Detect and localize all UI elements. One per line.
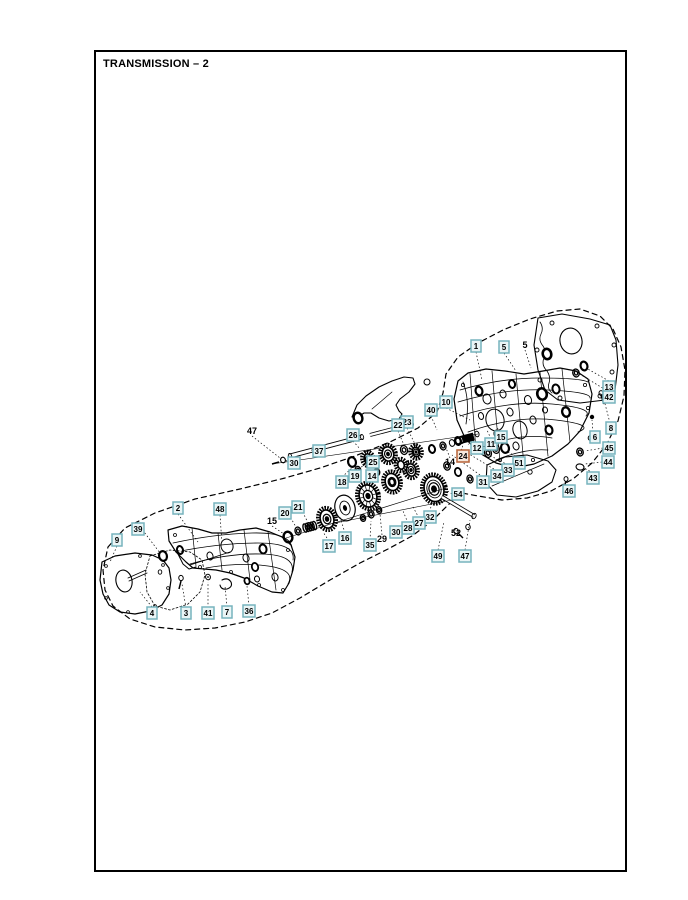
svg-text:40: 40 <box>427 406 436 415</box>
svg-text:37: 37 <box>315 447 324 456</box>
svg-text:28: 28 <box>404 524 413 533</box>
svg-text:39: 39 <box>134 525 143 534</box>
svg-text:24: 24 <box>459 452 468 461</box>
svg-text:45: 45 <box>605 444 614 453</box>
svg-text:2: 2 <box>176 504 181 513</box>
svg-text:41: 41 <box>204 609 213 618</box>
svg-text:15: 15 <box>267 516 277 526</box>
svg-text:48: 48 <box>216 505 225 514</box>
svg-text:26: 26 <box>349 431 358 440</box>
svg-text:30: 30 <box>290 459 299 468</box>
svg-text:12: 12 <box>473 444 482 453</box>
svg-text:29: 29 <box>377 534 387 544</box>
svg-text:51: 51 <box>515 459 524 468</box>
svg-text:9: 9 <box>115 536 120 545</box>
svg-text:8: 8 <box>609 424 614 433</box>
svg-text:35: 35 <box>366 541 375 550</box>
svg-text:33: 33 <box>504 466 513 475</box>
svg-text:43: 43 <box>589 474 598 483</box>
svg-text:14: 14 <box>368 472 377 481</box>
svg-text:52: 52 <box>451 528 461 538</box>
svg-text:1: 1 <box>474 342 479 351</box>
svg-text:47: 47 <box>247 426 257 436</box>
svg-text:5: 5 <box>502 343 507 352</box>
svg-text:32: 32 <box>426 513 435 522</box>
svg-text:10: 10 <box>442 398 451 407</box>
svg-text:22: 22 <box>394 421 403 430</box>
svg-text:4: 4 <box>150 609 155 618</box>
svg-text:54: 54 <box>454 490 463 499</box>
svg-text:27: 27 <box>415 519 424 528</box>
svg-text:49: 49 <box>434 552 443 561</box>
svg-text:25: 25 <box>369 458 378 467</box>
svg-text:34: 34 <box>493 472 502 481</box>
svg-text:46: 46 <box>565 487 574 496</box>
svg-text:36: 36 <box>245 607 254 616</box>
svg-text:16: 16 <box>341 534 350 543</box>
svg-text:47: 47 <box>461 552 470 561</box>
svg-text:42: 42 <box>605 393 614 402</box>
svg-text:31: 31 <box>479 478 488 487</box>
svg-text:19: 19 <box>351 472 360 481</box>
svg-text:21: 21 <box>294 503 303 512</box>
svg-text:5: 5 <box>522 340 527 350</box>
svg-text:14: 14 <box>445 457 455 467</box>
svg-text:7: 7 <box>225 608 230 617</box>
svg-text:17: 17 <box>325 542 334 551</box>
svg-text:6: 6 <box>593 433 598 442</box>
svg-text:18: 18 <box>338 478 347 487</box>
svg-text:15: 15 <box>497 433 506 442</box>
svg-text:3: 3 <box>184 609 189 618</box>
svg-text:30: 30 <box>392 528 401 537</box>
svg-text:44: 44 <box>604 458 613 467</box>
svg-text:20: 20 <box>281 509 290 518</box>
